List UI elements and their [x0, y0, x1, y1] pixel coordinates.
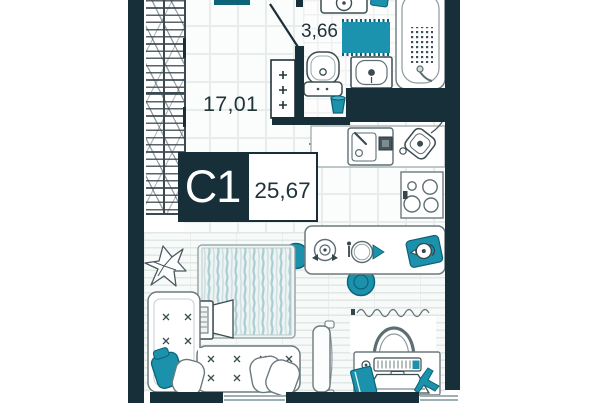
unit-label-badge: С1	[178, 152, 247, 222]
wall-left	[128, 0, 144, 403]
wall-tick-lower	[183, 107, 186, 127]
wall-tick-upper	[183, 38, 186, 58]
window-glazing-2	[420, 395, 458, 397]
floor-plan: 17,01 3,66 С1 25,67	[0, 0, 605, 403]
floor-planks	[144, 232, 445, 392]
wall-bottom-left	[150, 392, 223, 403]
wall-kitchen-top	[272, 117, 350, 125]
wall-right	[445, 0, 460, 390]
wall-bottom-right	[286, 392, 419, 403]
room-area-label: 17,01	[203, 92, 258, 117]
wall-bathroom-left	[295, 46, 304, 125]
window-glazing-1b	[224, 399, 285, 401]
top-accent-marker	[214, 0, 250, 5]
window-band-divider	[146, 92, 184, 94]
window-glazing-2b	[420, 399, 458, 401]
wall-tick-top	[296, 0, 303, 7]
total-area-box: 25,67	[247, 152, 318, 222]
window-glazing-1	[224, 395, 285, 397]
wall-bathroom-bottom	[346, 88, 445, 122]
bathroom-area-label: 3,66	[301, 21, 338, 43]
